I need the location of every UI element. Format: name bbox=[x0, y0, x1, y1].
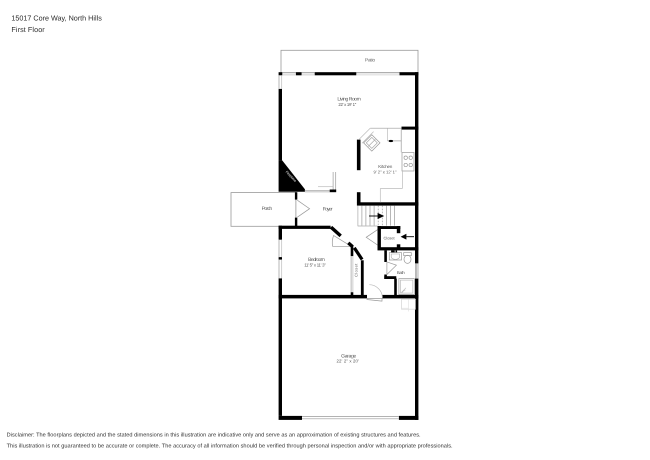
svg-text:Bath: Bath bbox=[397, 270, 405, 275]
svg-text:9' 2" x 12' 1": 9' 2" x 12' 1" bbox=[374, 169, 398, 174]
svg-text:Kitchen: Kitchen bbox=[378, 164, 393, 169]
svg-text:15017 Core Way, North Hills: 15017 Core Way, North Hills bbox=[11, 13, 102, 22]
svg-text:11' 5" x 11' 3": 11' 5" x 11' 3" bbox=[304, 263, 326, 268]
svg-text:First Floor: First Floor bbox=[11, 25, 45, 34]
svg-text:This illustration is not guara: This illustration is not guaranteed to b… bbox=[7, 442, 453, 449]
svg-text:Foyer: Foyer bbox=[323, 206, 333, 212]
svg-text:Patio: Patio bbox=[365, 58, 375, 64]
svg-text:Porch: Porch bbox=[262, 206, 273, 212]
svg-text:Closet: Closet bbox=[384, 236, 396, 241]
svg-text:22' x 19' 1": 22' x 19' 1" bbox=[338, 102, 356, 107]
svg-text:Closet: Closet bbox=[353, 263, 358, 277]
svg-text:22' 2" x 20': 22' 2" x 20' bbox=[337, 359, 360, 364]
svg-text:Disclaimer: The floorplans dep: Disclaimer: The floorplans depicted and … bbox=[7, 431, 421, 438]
